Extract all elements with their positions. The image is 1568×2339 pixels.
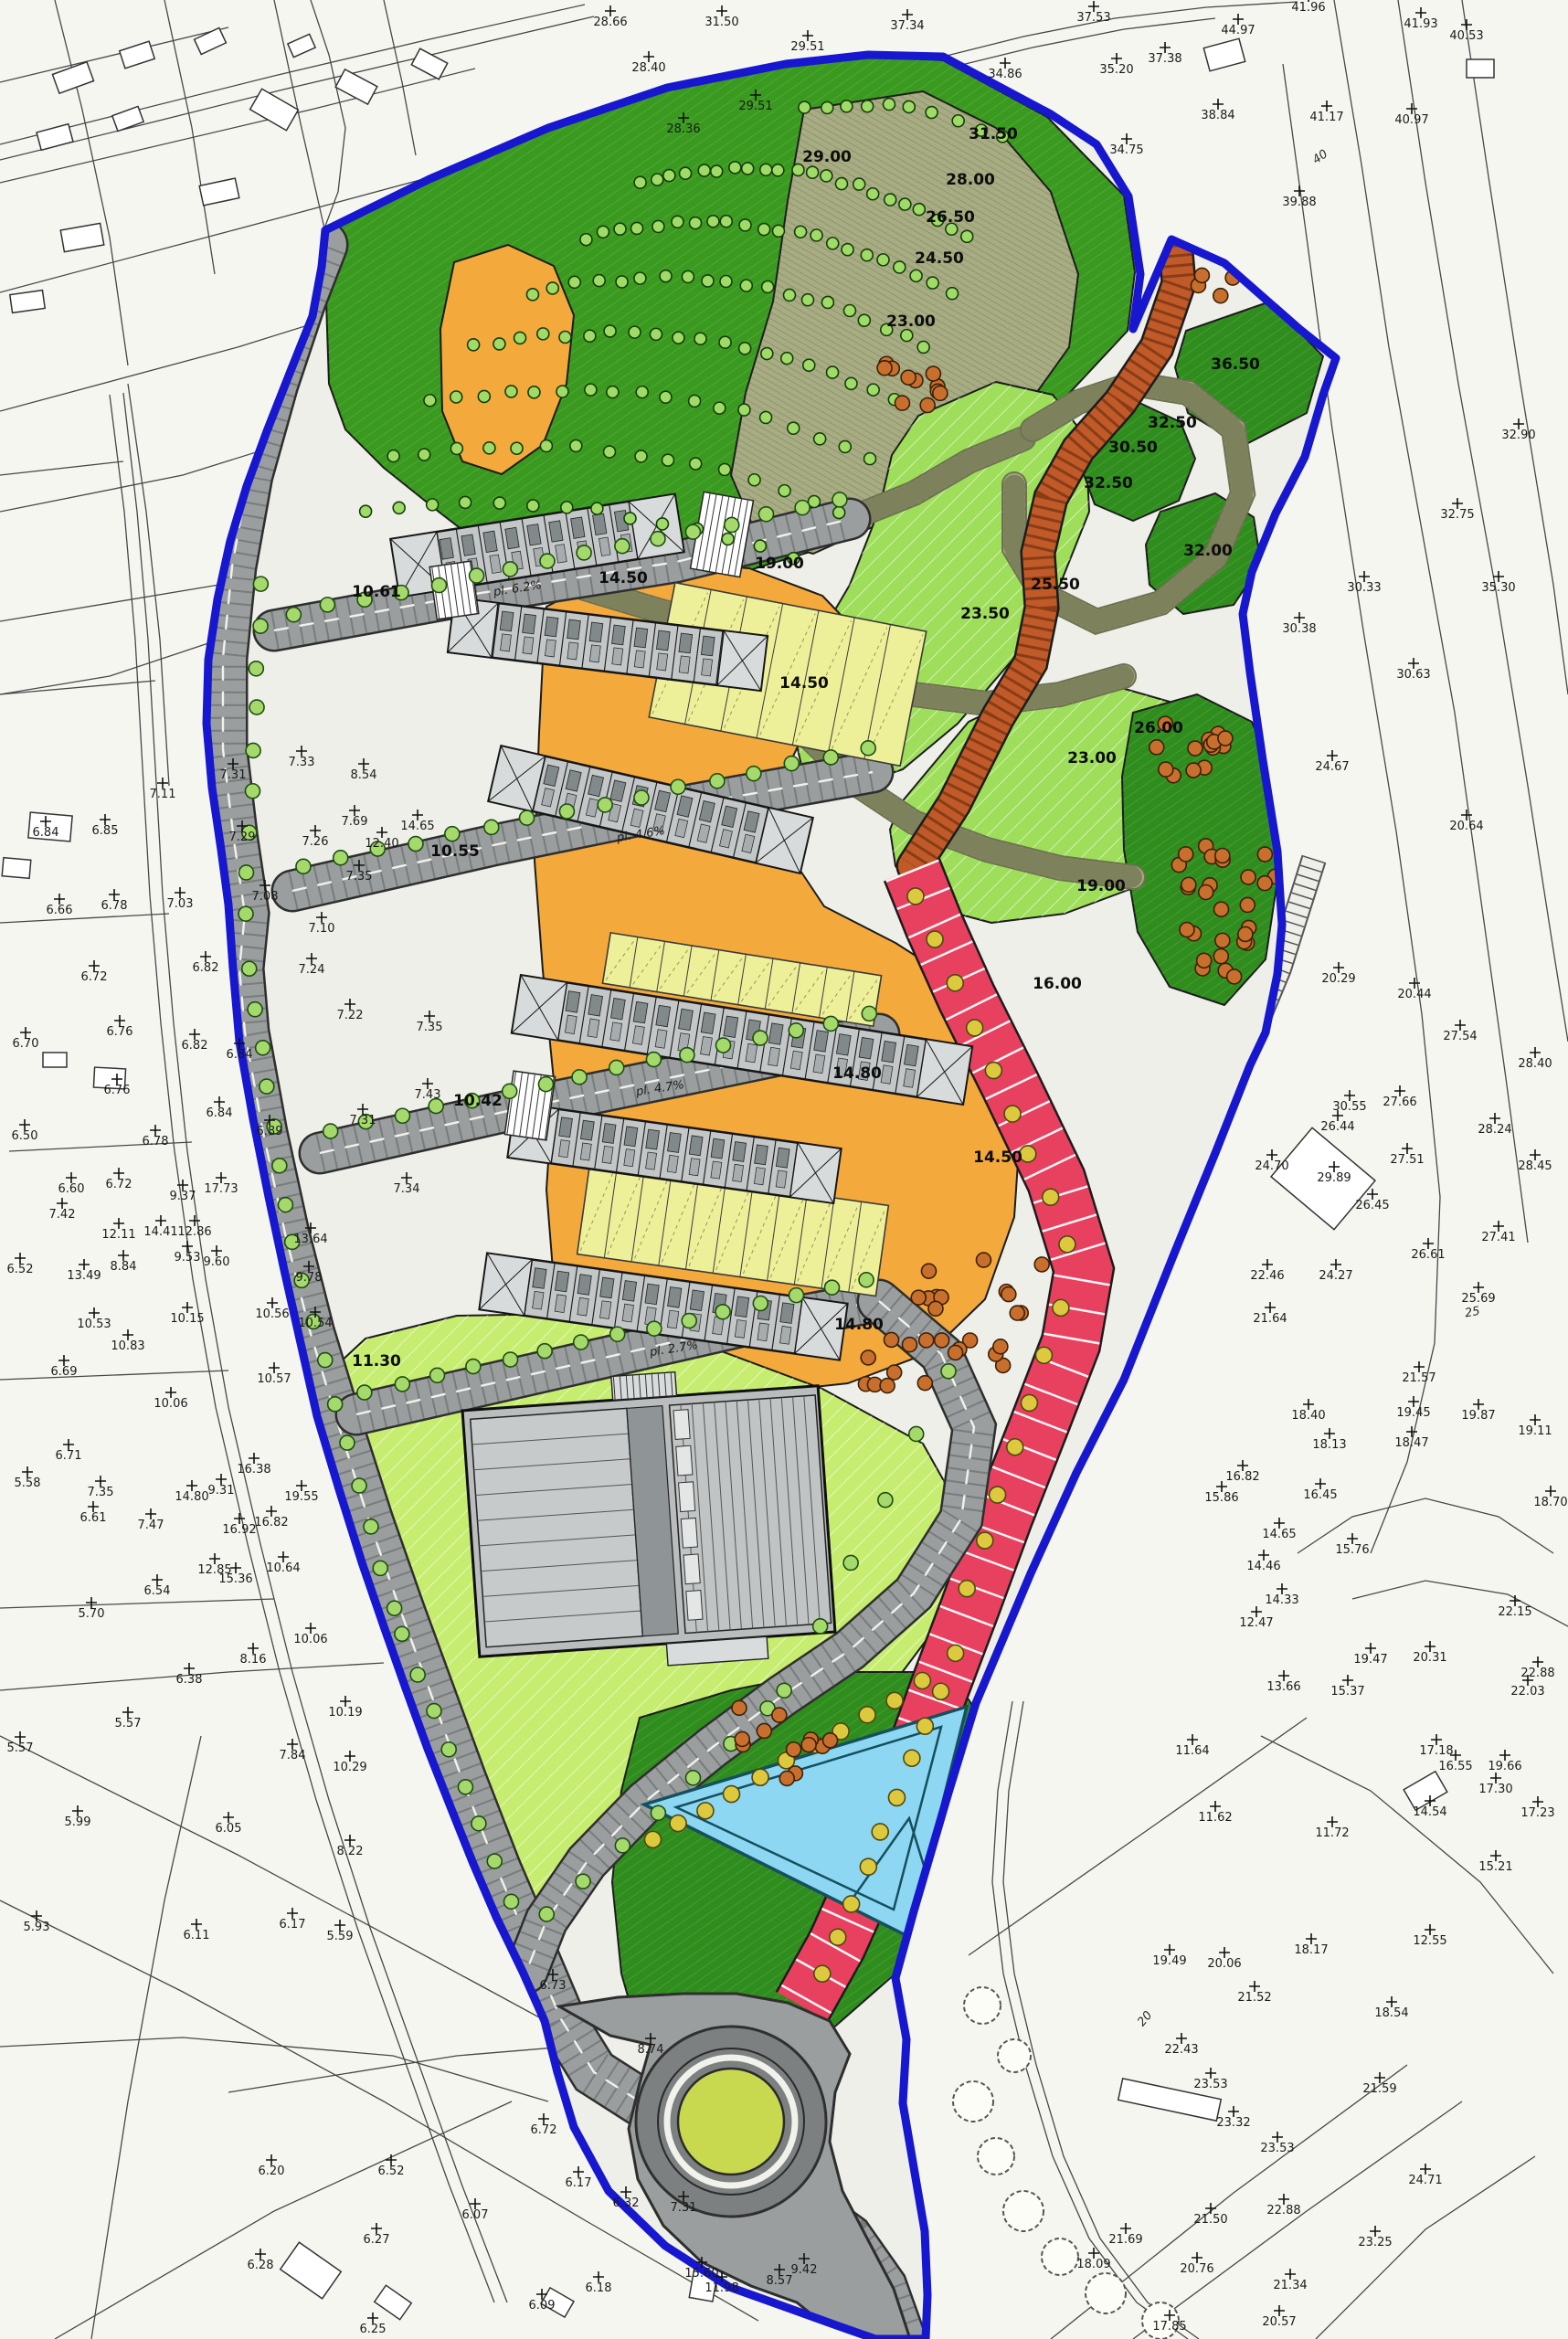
tree-icon	[503, 1084, 517, 1098]
spot-elevation-label: 6.05	[216, 1822, 242, 1836]
tree-icon	[503, 1352, 518, 1367]
spot-elevation-label: 9.31	[208, 1484, 235, 1498]
tree-icon	[1035, 1347, 1052, 1363]
spot-elevation-label: 8.54	[351, 768, 377, 782]
tree-icon	[952, 115, 964, 127]
tree-icon	[373, 1561, 387, 1575]
tree-icon	[885, 194, 896, 206]
tree-icon	[1043, 1189, 1059, 1205]
tree-icon	[758, 507, 773, 522]
tree-icon	[827, 366, 839, 378]
spot-elevation-label: 7.03	[167, 897, 194, 911]
tree-icon	[926, 366, 940, 381]
tree-icon	[537, 328, 549, 340]
tree-icon	[484, 820, 499, 834]
spot-elevation-label: 7.33	[289, 756, 315, 769]
spot-elevation-label: 7.35	[417, 1021, 443, 1034]
cadastral-line	[55, 0, 128, 365]
tree-icon	[1205, 232, 1220, 247]
spot-elevation-label: 7.35	[88, 1486, 114, 1499]
spot-elevation-label: 10.15	[170, 1312, 204, 1326]
spot-elevation-label: 14.65	[400, 820, 434, 833]
tree-icon	[1302, 226, 1317, 240]
contour-value-label: 25	[1464, 1305, 1481, 1321]
tree-icon	[672, 216, 683, 228]
tree-icon	[917, 1376, 932, 1391]
tree-icon	[976, 1253, 991, 1267]
spot-elevation-label: 7.31	[671, 2201, 697, 2215]
deciduous-tree-icon	[953, 2081, 993, 2122]
tree-icon	[927, 277, 938, 289]
tree-icon	[334, 851, 348, 865]
spot-elevation-label: 19.87	[1461, 1409, 1495, 1423]
tree-icon	[690, 217, 702, 229]
tree-icon	[864, 453, 876, 465]
tree-icon	[711, 165, 723, 177]
tree-icon	[843, 1555, 858, 1570]
spot-elevation-label: 32.90	[1501, 429, 1535, 442]
spot-elevation-label: 19.47	[1353, 1653, 1387, 1667]
context-building	[1467, 59, 1494, 78]
tree-icon	[823, 1733, 838, 1748]
tree-icon	[862, 101, 874, 112]
spot-elevation-label: 12.55	[1413, 1934, 1446, 1948]
tree-icon	[694, 333, 706, 344]
tree-icon	[801, 294, 813, 306]
tree-icon	[470, 568, 484, 583]
cadastral-line	[1283, 64, 1440, 1553]
tree-icon	[920, 397, 935, 412]
tree-icon	[1199, 885, 1213, 900]
tree-icon	[795, 501, 810, 515]
tree-icon	[540, 554, 555, 568]
spot-elevation-label: 40.53	[1449, 29, 1483, 43]
tree-icon	[833, 506, 845, 518]
masterplan-page: 28.6631.5037.3437.5344.9741.9641.9340.53…	[0, 0, 1568, 2339]
spot-elevation-label: 6.71	[56, 1449, 82, 1463]
tree-icon	[787, 1742, 801, 1757]
tree-icon	[715, 1305, 730, 1319]
cadastral-line	[1352, 1581, 1568, 1626]
tree-icon	[740, 280, 752, 291]
tree-icon	[739, 343, 751, 355]
spot-elevation-label: 9.78	[296, 1271, 323, 1285]
context-building	[2, 858, 31, 879]
tree-icon	[660, 391, 672, 403]
spot-elevation-label: 8.22	[337, 1845, 364, 1858]
spot-elevation-label: 6.38	[176, 1673, 203, 1687]
tree-icon	[538, 1077, 553, 1092]
tree-icon	[810, 229, 822, 241]
tree-icon	[528, 386, 540, 398]
tree-icon	[690, 458, 702, 470]
spot-elevation-label: 30.63	[1396, 668, 1430, 682]
tree-icon	[961, 230, 973, 242]
spot-elevation-label: 18.17	[1294, 1943, 1328, 1957]
tree-icon	[577, 545, 591, 560]
tree-icon	[947, 288, 959, 300]
cadastral-line	[0, 2037, 548, 2101]
tree-icon	[468, 339, 480, 351]
zone-elevation-label: 10.55	[430, 842, 480, 861]
tree-icon	[1244, 250, 1258, 265]
spot-elevation-label: 6.27	[364, 2233, 390, 2247]
tree-icon	[1004, 1106, 1021, 1122]
tree-icon	[761, 348, 773, 360]
cadastral-line	[0, 1371, 228, 1380]
spot-elevation-label: 21.34	[1273, 2279, 1307, 2292]
tree-icon	[609, 1060, 624, 1074]
tree-icon	[885, 1332, 899, 1347]
tree-icon	[246, 743, 260, 757]
tree-icon	[320, 598, 334, 612]
tree-icon	[260, 1079, 274, 1094]
spot-elevation-label: 23.53	[1260, 2142, 1294, 2155]
tree-icon	[907, 888, 924, 905]
tree-icon	[505, 386, 517, 397]
tree-icon	[460, 496, 471, 508]
tree-icon	[948, 1645, 964, 1661]
tree-icon	[789, 1023, 803, 1038]
context-building	[281, 2242, 342, 2299]
tree-icon	[1188, 741, 1202, 756]
tree-icon	[985, 1063, 1001, 1079]
tree-icon	[527, 500, 539, 512]
spot-elevation-label: 6.76	[107, 1025, 133, 1039]
cadastral-line	[0, 16, 594, 160]
tree-icon	[328, 1397, 343, 1412]
spot-elevation-label: 35.30	[1481, 581, 1515, 595]
tree-icon	[823, 750, 838, 765]
tree-icon	[702, 275, 714, 287]
tree-icon	[1257, 847, 1272, 862]
tree-icon	[682, 1314, 696, 1328]
zone-elevation-label: 32.50	[1084, 474, 1133, 492]
tree-icon	[607, 386, 619, 398]
spot-elevation-label: 6.78	[143, 1135, 169, 1148]
contour-value-label: 40	[1310, 147, 1330, 167]
spot-elevation-label: 5.59	[327, 1930, 354, 1943]
tree-icon	[902, 1338, 916, 1352]
spot-elevation-label: 12.11	[101, 1228, 135, 1242]
spot-elevation-label: 10.83	[111, 1339, 144, 1353]
tree-icon	[901, 330, 913, 342]
tree-icon	[725, 517, 739, 532]
tree-icon	[682, 270, 694, 282]
spot-elevation-label: 20.64	[1449, 820, 1483, 833]
spot-elevation-label: 29.89	[1317, 1171, 1351, 1185]
tree-icon	[591, 503, 603, 514]
spot-elevation-label: 6.84	[33, 826, 59, 840]
tree-icon	[1059, 1236, 1075, 1253]
spot-elevation-label: 27.66	[1383, 1095, 1416, 1109]
tree-icon	[559, 804, 574, 819]
parking-area	[1139, 155, 1261, 245]
zone-elevation-label: 32.50	[1148, 414, 1197, 432]
tree-icon	[1007, 1439, 1023, 1455]
tree-icon	[853, 178, 865, 190]
tree-icon	[634, 272, 646, 284]
tree-icon	[1181, 877, 1196, 892]
spot-elevation-label: 12.40	[365, 837, 398, 851]
deciduous-tree-icon	[964, 1987, 1001, 2024]
spot-elevation-label: 8.57	[767, 2274, 793, 2288]
tree-icon	[1240, 206, 1255, 221]
spot-elevation-label: 26.61	[1411, 1248, 1445, 1262]
tree-icon	[410, 1667, 425, 1682]
spot-elevation-label: 13.66	[1266, 1680, 1300, 1694]
tree-icon	[604, 325, 616, 337]
tree-icon	[450, 391, 462, 403]
tree-icon	[913, 204, 925, 216]
tree-icon	[458, 1780, 472, 1794]
spot-elevation-label: 9.60	[204, 1255, 230, 1269]
zone-elevation-label: 19.00	[1076, 877, 1126, 895]
tree-icon	[859, 1273, 874, 1287]
tree-icon	[483, 442, 495, 454]
tree-icon	[634, 176, 646, 188]
spot-elevation-label: 20.76	[1180, 2262, 1213, 2276]
tree-icon	[901, 370, 916, 385]
spot-elevation-label: 10.53	[77, 1318, 111, 1331]
tree-icon	[784, 757, 799, 771]
spot-elevation-label: 20.06	[1207, 1957, 1241, 1971]
tree-icon	[887, 1365, 902, 1380]
zone-elevation-label: 28.00	[946, 171, 995, 189]
tree-icon	[450, 442, 462, 454]
tree-icon	[910, 270, 922, 281]
spot-elevation-label: 5.58	[15, 1476, 41, 1490]
tree-icon	[762, 280, 774, 292]
tree-icon	[799, 101, 810, 113]
spot-elevation-label: 20.29	[1321, 972, 1355, 986]
spot-elevation-label: 16.38	[237, 1463, 270, 1476]
spot-elevation-label: 6.07	[462, 2208, 489, 2222]
tree-icon	[867, 188, 879, 200]
spot-elevation-label: 6.70	[13, 1037, 39, 1051]
tree-icon	[795, 226, 807, 238]
tree-icon	[652, 220, 664, 232]
tree-icon	[631, 222, 643, 234]
roundabout-island	[678, 2069, 784, 2175]
tree-icon	[835, 178, 847, 190]
spot-elevation-label: 16.92	[222, 1523, 256, 1537]
spot-elevation-label: 7.08	[252, 890, 279, 904]
tree-icon	[886, 1692, 903, 1709]
tree-icon	[801, 1738, 816, 1752]
spot-elevation-label: 39.88	[1282, 196, 1316, 209]
tree-icon	[825, 1280, 840, 1295]
spot-elevation-label: 7.69	[342, 815, 368, 829]
tree-icon	[757, 1723, 771, 1738]
tree-icon	[814, 1965, 831, 1982]
tree-icon	[493, 338, 505, 350]
tree-icon	[842, 244, 853, 256]
context-building	[43, 1053, 67, 1067]
tree-icon	[644, 1831, 661, 1847]
spot-elevation-label: 28.40	[1518, 1057, 1552, 1071]
tree-icon	[832, 492, 847, 507]
spot-elevation-label: 7.35	[346, 870, 373, 884]
cadastral-line	[969, 1718, 1307, 1955]
spot-elevation-label: 7.10	[309, 922, 335, 936]
spot-elevation-label: 10.06	[293, 1633, 327, 1646]
tree-icon	[634, 790, 649, 805]
tree-icon	[680, 1048, 694, 1063]
spot-elevation-label: 40.97	[1394, 113, 1428, 127]
deciduous-tree-icon	[1042, 2238, 1078, 2275]
zone-elevation-label: 23.00	[1067, 749, 1117, 767]
spot-elevation-label: 17.18	[1419, 1744, 1453, 1758]
tree-icon	[614, 223, 626, 235]
spot-elevation-label: 35.20	[1099, 63, 1133, 77]
spot-elevation-label: 27.51	[1390, 1153, 1424, 1167]
spot-elevation-label: 6.52	[7, 1263, 34, 1276]
spot-elevation-label: 9.42	[791, 2263, 818, 2277]
spot-elevation-label: 11.64	[1175, 1744, 1209, 1758]
spot-elevation-label: 26.45	[1355, 1199, 1389, 1212]
tree-icon	[697, 1803, 714, 1819]
tree-icon	[754, 540, 766, 552]
tree-icon	[539, 1907, 554, 1921]
tree-icon	[1021, 1394, 1037, 1411]
spot-elevation-label: 6.89	[257, 1125, 283, 1138]
tree-icon	[427, 1704, 441, 1719]
tree-icon	[1263, 257, 1277, 271]
tree-icon	[698, 164, 710, 176]
spot-elevation-label: 23.53	[1193, 2078, 1227, 2091]
tree-icon	[914, 1673, 930, 1689]
tree-icon	[904, 1750, 920, 1766]
zone-elevation-label: 14.50	[973, 1148, 1022, 1167]
tree-icon	[570, 439, 582, 451]
tree-icon	[574, 1335, 588, 1349]
tree-icon	[296, 859, 311, 873]
tree-icon	[395, 1108, 409, 1123]
tree-icon	[278, 1198, 292, 1212]
deciduous-tree-icon	[1086, 2273, 1126, 2313]
spot-elevation-label: 10.57	[257, 1372, 291, 1386]
spot-elevation-label: 14.46	[1246, 1560, 1280, 1573]
tree-icon	[916, 1718, 933, 1734]
spot-elevation-label: 13.64	[293, 1233, 327, 1246]
tree-icon	[1150, 740, 1164, 755]
spot-elevation-label: 7.22	[337, 1009, 364, 1022]
tree-icon	[948, 1345, 963, 1360]
spot-elevation-label: 23.32	[1216, 2116, 1250, 2130]
tree-icon	[947, 975, 963, 991]
tree-icon	[256, 1041, 270, 1055]
spot-elevation-label: 6.84	[227, 1048, 253, 1062]
spot-elevation-label: 21.59	[1362, 2082, 1396, 2096]
tree-icon	[843, 1896, 860, 1912]
spot-elevation-label: 6.32	[613, 2196, 640, 2210]
zone-elevation-label: 23.50	[960, 605, 1010, 623]
tree-icon	[685, 524, 700, 539]
spot-elevation-label: 21.52	[1237, 1991, 1271, 2005]
context-building	[112, 106, 143, 131]
zone-elevation-label: 19.00	[755, 555, 804, 573]
spot-elevation-label: 18.09	[1076, 2258, 1110, 2271]
spot-elevation-label: 13.49	[67, 1269, 101, 1283]
cadastral-line	[0, 1599, 274, 1608]
tree-icon	[360, 505, 372, 517]
zone-elevation-label: 11.30	[352, 1352, 401, 1371]
tree-icon	[357, 1385, 372, 1400]
tree-icon	[813, 1619, 828, 1634]
zone-elevation-label: 31.50	[969, 125, 1018, 143]
spot-elevation-label: 6.28	[248, 2259, 274, 2272]
spot-elevation-label: 14.54	[1413, 1805, 1446, 1819]
spot-elevation-label: 24.67	[1315, 760, 1349, 774]
cadastral-line	[1334, 0, 1528, 1243]
spot-elevation-label: 6.72	[81, 970, 108, 984]
tree-icon	[716, 1038, 731, 1053]
spot-elevation-label: 7.31	[350, 1114, 376, 1127]
tree-icon	[395, 1626, 409, 1641]
tree-icon	[760, 411, 772, 423]
spot-elevation-label: 18.13	[1312, 1438, 1346, 1452]
tree-icon	[779, 485, 790, 497]
tree-icon	[1180, 923, 1194, 937]
tree-icon	[1239, 221, 1254, 236]
tree-icon	[872, 1824, 888, 1840]
spot-elevation-label: 6.72	[106, 1178, 132, 1191]
tree-icon	[878, 1493, 893, 1508]
cadastral-line	[384, 0, 416, 155]
spot-elevation-label: 14.33	[1265, 1593, 1298, 1607]
tree-icon	[673, 332, 684, 344]
spot-elevation-label: 18.47	[1394, 1436, 1428, 1450]
tree-icon	[710, 774, 725, 788]
zone-elevation-label: 10.42	[453, 1092, 503, 1110]
spot-elevation-label: 17.73	[204, 1182, 238, 1196]
spot-elevation-label: 37.34	[890, 19, 924, 33]
spot-elevation-label: 6.84	[207, 1106, 233, 1120]
tree-icon	[387, 450, 399, 462]
tree-icon	[340, 1435, 355, 1450]
tree-icon	[877, 361, 892, 376]
spot-elevation-label: 31.50	[705, 16, 738, 29]
tree-icon	[352, 1478, 366, 1493]
spot-elevation-label: 34.75	[1109, 143, 1143, 157]
tree-icon	[823, 1016, 838, 1031]
tree-icon	[959, 1581, 975, 1597]
spot-elevation-label: 12.86	[177, 1225, 211, 1239]
tree-icon	[830, 1929, 846, 1945]
spot-elevation-label: 7.31	[220, 768, 247, 782]
spot-elevation-label: 30.55	[1332, 1100, 1366, 1114]
spot-elevation-label: 16.82	[1225, 1470, 1259, 1484]
tree-icon	[1217, 238, 1232, 252]
zone-elevation-label: 26.50	[926, 208, 975, 227]
tree-icon	[1213, 289, 1228, 303]
tree-icon	[803, 359, 815, 371]
tree-icon	[238, 865, 253, 880]
tree-icon	[253, 619, 268, 633]
spot-elevation-label: 6.20	[259, 2164, 285, 2178]
spot-elevation-label: 37.38	[1148, 52, 1181, 66]
tree-icon	[546, 282, 558, 294]
cadastral-line	[0, 914, 169, 923]
tree-icon	[781, 353, 793, 365]
spot-elevation-label: 6.61	[80, 1511, 107, 1525]
tree-icon	[860, 1858, 876, 1875]
tree-icon	[772, 1708, 787, 1722]
spot-elevation-label: 6.69	[51, 1365, 78, 1379]
spot-elevation-label: 25.69	[1461, 1292, 1495, 1306]
zone-elevation-label: 10.61	[352, 583, 401, 601]
